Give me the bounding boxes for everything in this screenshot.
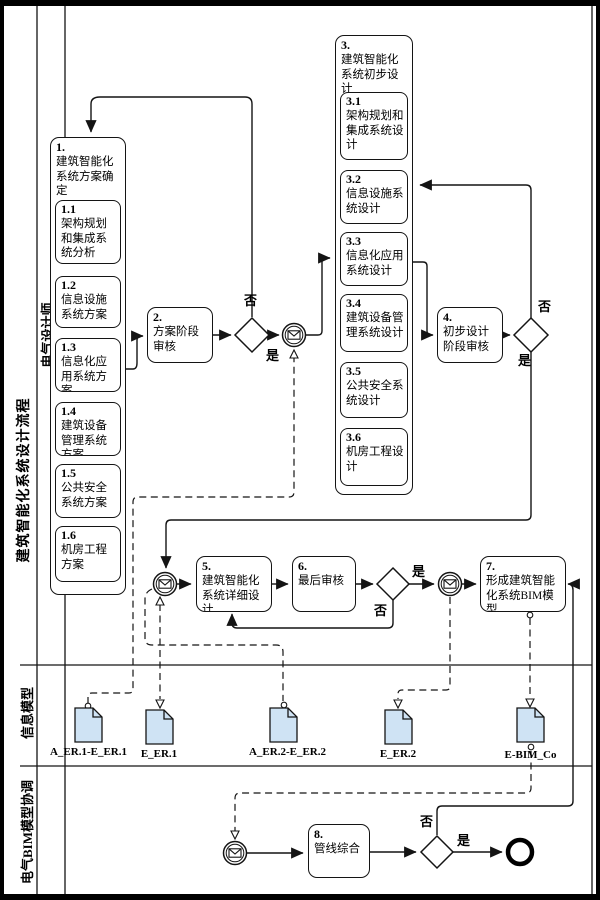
document-icon-1 — [75, 708, 102, 742]
activity-3-label: 建筑智能化系统初步设计 — [341, 53, 409, 96]
subactivity-1-2: 1.2 信息设施系统方案 — [55, 276, 121, 328]
subactivity-1-3-number: 1.3 — [61, 340, 117, 355]
gateway-1-no-label: 否 — [244, 294, 257, 307]
gateway-4-yes-label: 是 — [457, 834, 470, 847]
subactivity-3-3: 3.3 信息化应用系统设计 — [340, 232, 408, 286]
activity-6: 6. 最后审核 — [292, 556, 356, 612]
subactivity-3-5: 3.5 公共安全系统设计 — [340, 362, 408, 418]
flow-gateway2-no-to-activity3 — [420, 185, 531, 318]
open-arrow-icon — [156, 700, 164, 708]
subactivity-3-6-label: 机房工程设计 — [346, 445, 404, 474]
activity-7: 7. 形成建筑智能化系统BIM模型 — [480, 556, 566, 612]
subactivity-1-1: 1.1 架构规划和集成系统分析 — [55, 200, 121, 264]
open-arrow-icon — [156, 597, 164, 605]
subactivity-3-5-number: 3.5 — [346, 364, 404, 379]
activity-8-label: 管线综合 — [314, 842, 366, 856]
subactivity-1-4-label: 建筑设备管理系统方案 — [61, 419, 117, 456]
document-3-label: A_ER.2-E_ER.2 — [241, 746, 334, 758]
activity-1-label: 建筑智能化系统方案确定 — [56, 155, 122, 198]
document-icon-3 — [270, 708, 297, 742]
subactivity-3-1-number: 3.1 — [346, 94, 404, 109]
activity-2: 2. 方案阶段审核 — [147, 307, 213, 363]
gateway-4-no-label: 否 — [420, 815, 433, 828]
subactivity-1-6-number: 1.6 — [61, 528, 117, 543]
activity-3-number: 3. — [341, 38, 409, 53]
subactivity-1-4: 1.4 建筑设备管理系统方案 — [55, 402, 121, 456]
activity-4: 4. 初步设计阶段审核 — [437, 307, 503, 363]
association-message3-to-doc4 — [398, 597, 450, 699]
subactivity-3-3-label: 信息化应用系统设计 — [346, 249, 404, 278]
activity-6-number: 6. — [298, 559, 352, 574]
subactivity-1-3-label: 信息化应用系统方案 — [61, 355, 117, 392]
gateway-2-diamond — [514, 318, 548, 352]
document-icon-2 — [146, 710, 173, 744]
open-arrow-icon — [231, 831, 239, 839]
activity-4-number: 4. — [443, 310, 499, 325]
subactivity-1-1-label: 架构规划和集成系统分析 — [61, 217, 117, 260]
flow-message1-to-activity3 — [306, 258, 330, 335]
message-event-3-envelope-icon — [439, 573, 462, 596]
subactivity-3-6: 3.6 机房工程设计 — [340, 428, 408, 486]
subactivity-3-3-number: 3.3 — [346, 234, 404, 249]
subactivity-3-6-number: 3.6 — [346, 430, 404, 445]
document-1-label: A_ER.1-E_ER.1 — [42, 746, 135, 758]
activity-4-label: 初步设计阶段审核 — [443, 325, 499, 354]
bpmn-flowchart: 建筑智能化系统设计流程 电气设计师 信息模型 电气BIM模型协调 1. 建筑智能… — [0, 0, 600, 900]
activity-3: 3. 建筑智能化系统初步设计 3.1 架构规划和集成系统设计 3.2 信息设施系… — [335, 35, 413, 495]
subactivity-1-6-label: 机房工程方案 — [61, 543, 117, 572]
message-event-1-envelope-icon — [283, 324, 306, 347]
document-4-label: E_ER.2 — [368, 748, 428, 760]
activity-2-label: 方案阶段审核 — [153, 325, 209, 354]
subactivity-3-4-number: 3.4 — [346, 296, 404, 311]
subactivity-1-2-number: 1.2 — [61, 278, 117, 293]
gateway-3-yes-label: 是 — [412, 565, 425, 578]
subactivity-3-4: 3.4 建筑设备管理系统设计 — [340, 294, 408, 352]
open-arrow-icon — [394, 700, 402, 708]
activity-8: 8. 管线综合 — [308, 824, 370, 878]
activity-5-number: 5. — [202, 559, 268, 574]
activity-2-number: 2. — [153, 310, 209, 325]
open-arrow-icon — [290, 350, 298, 358]
gateway-1-yes-label: 是 — [266, 349, 279, 362]
activity-5-label: 建筑智能化系统详细设计 — [202, 574, 268, 612]
activity-5: 5. 建筑智能化系统详细设计 — [196, 556, 272, 612]
subactivity-1-3: 1.3 信息化应用系统方案 — [55, 338, 121, 392]
open-arrow-icon — [526, 699, 534, 707]
association-doc5-to-message4 — [235, 751, 531, 831]
gateway-3-diamond — [377, 568, 409, 600]
gateway-2-no-label: 否 — [538, 300, 551, 313]
activity-7-number: 7. — [486, 559, 562, 574]
document-2-label: E_ER.1 — [129, 748, 189, 760]
anchor-circle-icon — [527, 612, 533, 618]
end-event-icon — [508, 840, 532, 864]
subactivity-1-6: 1.6 机房工程方案 — [55, 526, 121, 582]
subactivity-3-2-label: 信息设施系统设计 — [346, 187, 404, 216]
activity-7-label: 形成建筑智能化系统BIM模型 — [486, 574, 562, 612]
subactivity-1-5-label: 公共安全系统方案 — [61, 481, 117, 510]
subactivity-1-5-number: 1.5 — [61, 466, 117, 481]
activity-1: 1. 建筑智能化系统方案确定 1.1 架构规划和集成系统分析 1.2 信息设施系… — [50, 137, 126, 595]
document-5-label: E-BIM_Co — [499, 749, 562, 761]
subactivity-3-5-label: 公共安全系统设计 — [346, 379, 404, 408]
subactivity-1-5: 1.5 公共安全系统方案 — [55, 464, 121, 518]
activity-6-label: 最后审核 — [298, 574, 352, 588]
subactivity-1-2-label: 信息设施系统方案 — [61, 293, 117, 322]
subactivity-3-1: 3.1 架构规划和集成系统设计 — [340, 92, 408, 160]
activity-1-number: 1. — [56, 140, 122, 155]
gateway-2-yes-label: 是 — [518, 354, 531, 367]
gateway-1-diamond — [235, 318, 269, 352]
gateway-4-diamond — [421, 836, 453, 868]
flow-activity1-to-activity2 — [126, 336, 143, 369]
flow-activity3-to-activity4 — [413, 262, 433, 335]
message-event-4-envelope-icon — [224, 842, 247, 865]
subactivity-1-4-number: 1.4 — [61, 404, 117, 419]
lane-label-bim-coordination: 电气BIM模型协调 — [20, 732, 36, 900]
gateway-3-no-label: 否 — [374, 604, 387, 617]
activity-8-number: 8. — [314, 827, 366, 842]
subactivity-1-1-number: 1.1 — [61, 202, 117, 217]
flow-gateway4-no-to-activity7 — [437, 584, 573, 835]
document-icon-5 — [517, 708, 544, 742]
document-icon-4 — [385, 710, 412, 744]
pool-title: 建筑智能化系统设计流程 — [17, 380, 33, 580]
message-event-2-envelope-icon — [154, 573, 177, 596]
subactivity-3-2-number: 3.2 — [346, 172, 404, 187]
subactivity-3-4-label: 建筑设备管理系统设计 — [346, 311, 404, 340]
subactivity-3-1-label: 架构规划和集成系统设计 — [346, 109, 404, 152]
subactivity-3-2: 3.2 信息设施系统设计 — [340, 170, 408, 224]
anchor-circle-icon — [281, 702, 287, 708]
data-objects — [75, 708, 544, 744]
